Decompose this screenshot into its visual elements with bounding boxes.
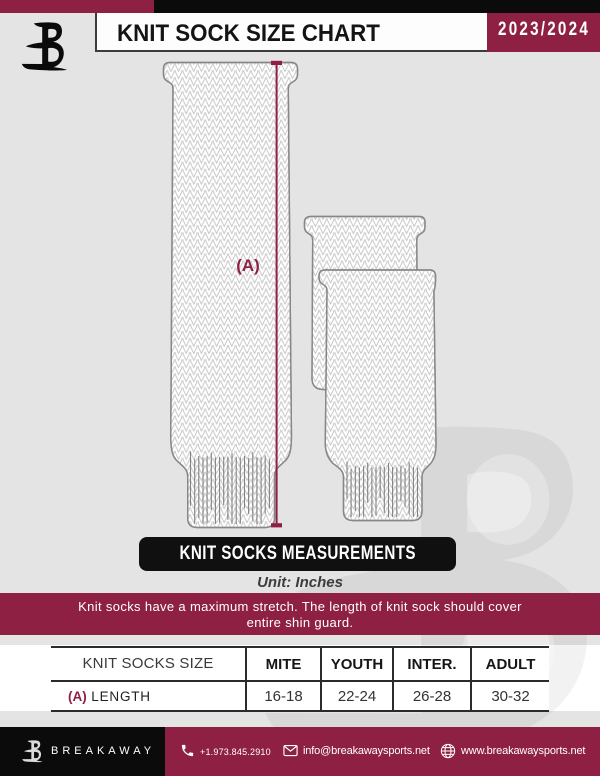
svg-text:(A): (A)	[236, 256, 260, 275]
